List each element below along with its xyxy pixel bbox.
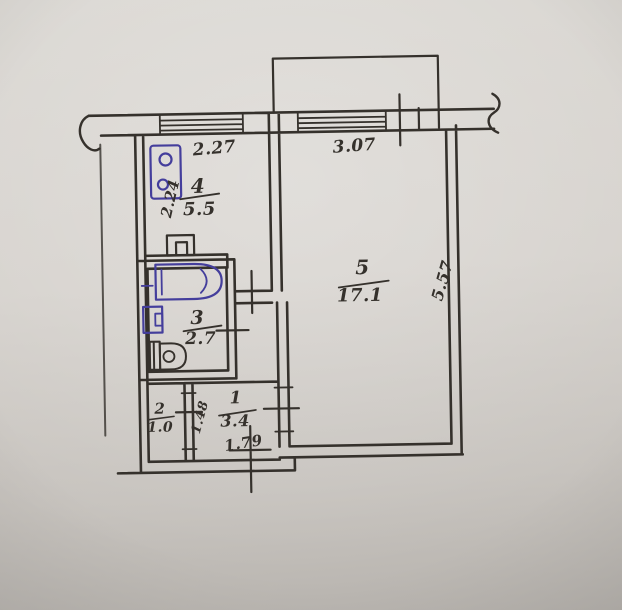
room-number: 4 [191, 174, 206, 198]
wall-break-squiggle [488, 94, 500, 133]
kitchen-door-mark [251, 271, 252, 313]
room-area: 17.1 [337, 285, 383, 307]
room-number: 5 [355, 255, 370, 279]
wall-break-curl [80, 116, 100, 151]
room-label-2: 2 1.0 [147, 399, 175, 435]
room-number: 3 [190, 307, 204, 329]
dim-room5-depth: 5.57 [427, 258, 457, 303]
dim-room5-width: 3.07 [332, 135, 377, 158]
room-label-5: 5 17.1 [336, 255, 389, 307]
plumbing-fixtures [139, 145, 222, 333]
room-number: 1 [229, 388, 242, 408]
dim-hall-width: 1.79 [223, 431, 264, 455]
toilet-bowl-circle [163, 351, 174, 362]
room5-door-mark [264, 408, 299, 409]
stove-burner [159, 153, 171, 165]
room-area: 1.0 [147, 419, 173, 435]
room-label-1: 1 3.4 [219, 388, 257, 431]
toilet-tank [150, 342, 160, 370]
room-area: 5.5 [183, 199, 216, 221]
handwritten-labels: 2.27 3.07 2.24 5.57 1.48 1.79 4 5.5 3 2.… [142, 133, 460, 456]
adjacent-building-wall [100, 145, 105, 436]
window-icon [160, 113, 243, 134]
floor-plan-drawing: 2.27 3.07 2.24 5.57 1.48 1.79 4 5.5 3 2.… [0, 0, 622, 610]
room-number: 2 [153, 400, 165, 418]
toilet-icon [150, 341, 186, 370]
vent-shaft-icon [167, 235, 194, 255]
window-icon [298, 111, 386, 133]
dim-room4-width: 2.27 [191, 137, 237, 161]
scanned-floor-plan: 2.27 3.07 2.24 5.57 1.48 1.79 4 5.5 3 2.… [0, 0, 622, 610]
room-label-4: 4 5.5 [180, 174, 220, 221]
bathroom-door-mark [217, 330, 249, 331]
room-area: 3.4 [220, 411, 250, 431]
room-label-3: 3 2.7 [183, 307, 222, 350]
axis-tick-marks [399, 94, 419, 145]
room-area: 2.7 [184, 329, 216, 350]
bathtub-inner-lines [161, 269, 206, 295]
